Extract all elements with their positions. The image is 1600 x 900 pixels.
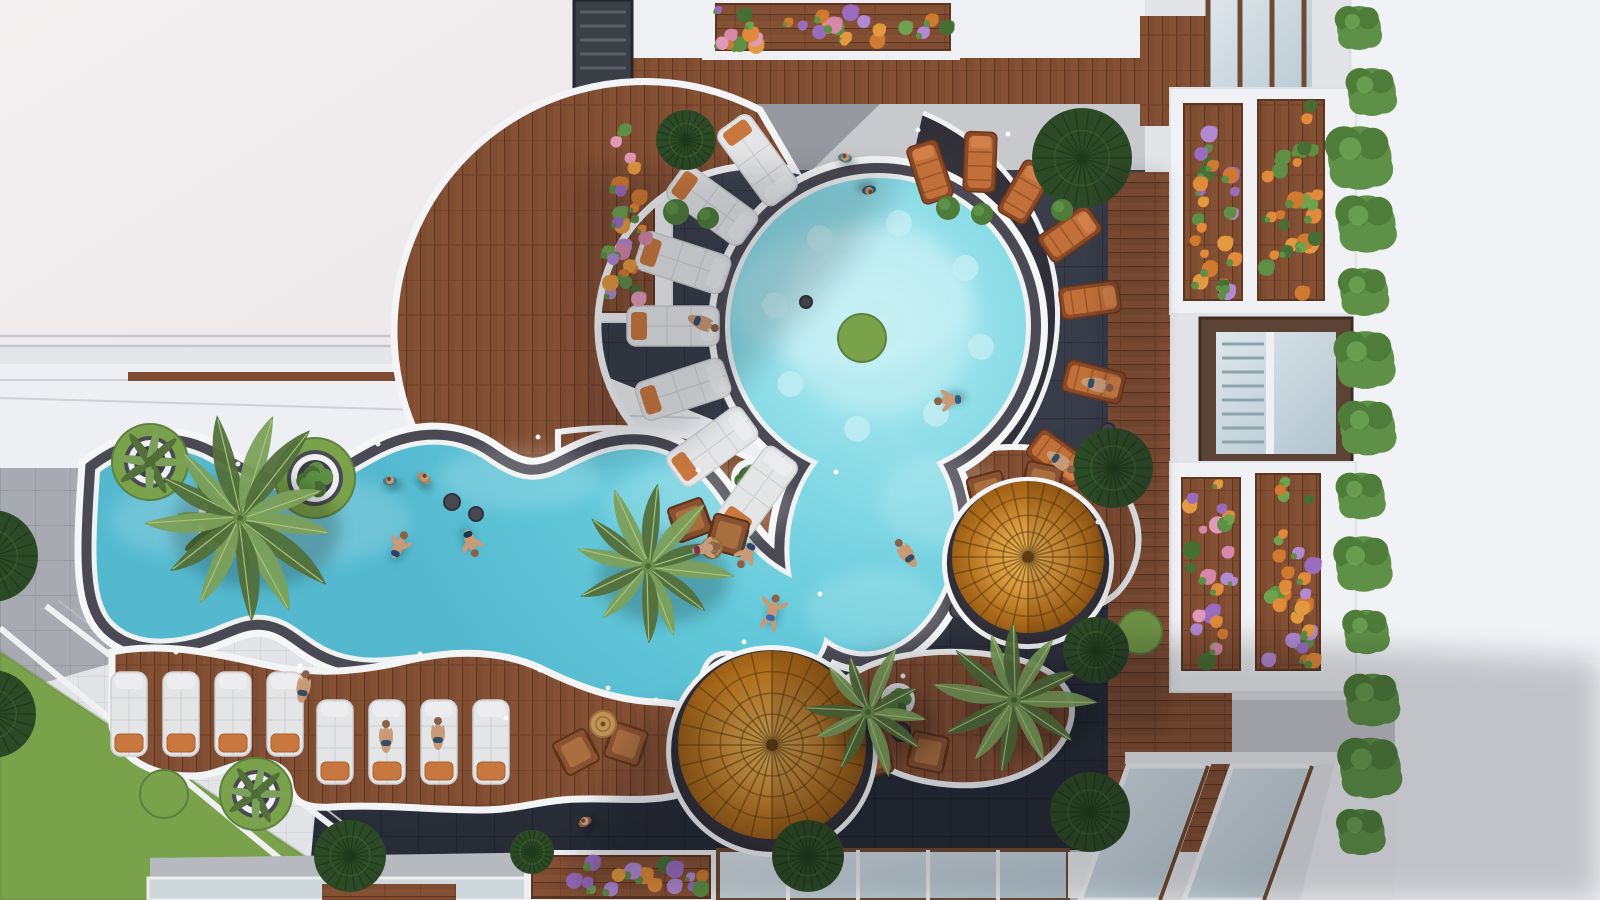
ring-planter — [220, 758, 292, 830]
walkway-shadow — [1100, 170, 1166, 730]
rattan-table — [590, 711, 616, 737]
hedge-bush — [1335, 195, 1397, 252]
hedge-bush — [1336, 473, 1386, 520]
flat-lounger — [963, 131, 997, 192]
small-bush — [1051, 199, 1073, 221]
canopy-tree — [314, 820, 386, 892]
sun-lounger — [163, 672, 199, 756]
sun-lounger — [473, 700, 509, 784]
hedge-bush — [1335, 6, 1382, 50]
hedge-bush — [1334, 331, 1396, 389]
hedge-bush — [1338, 401, 1397, 456]
hedge-bush — [1338, 268, 1389, 316]
hedge-bush — [1325, 126, 1393, 190]
sun-lounger — [317, 700, 353, 784]
hedge-bush — [1346, 68, 1398, 116]
right-dark-window — [1200, 318, 1352, 468]
pouf-stool — [469, 507, 483, 521]
canopy-tree — [510, 830, 554, 874]
resort-aerial-render — [0, 0, 1600, 900]
pouf-stool — [444, 494, 460, 510]
sun-lounger — [215, 672, 251, 756]
scene-canvas — [0, 0, 1600, 900]
hedge-bush — [1333, 536, 1393, 591]
small-bush — [936, 196, 960, 220]
canopy-tree — [656, 110, 716, 170]
sun-lounger — [111, 672, 147, 756]
small-bush — [971, 203, 993, 225]
